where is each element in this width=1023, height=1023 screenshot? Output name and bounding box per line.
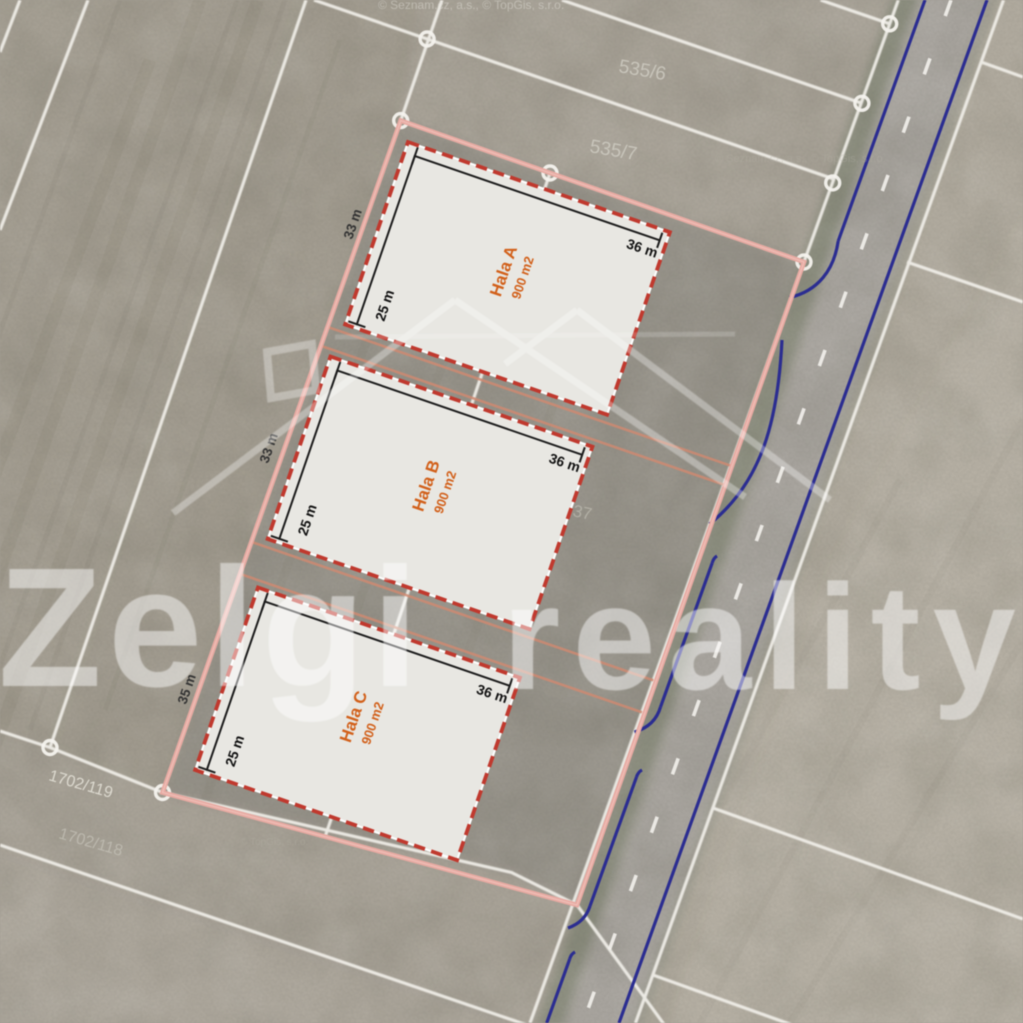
svg-text:© Seznam.cz, a.s., © TopGis, s: © Seznam.cz, a.s., © TopGis, s.r.o.	[378, 0, 564, 12]
svg-text:reality: reality	[502, 553, 1023, 721]
svg-text:37: 37	[571, 501, 593, 524]
svg-text:© Seznam.cz, a.s., © TopGis, s: © Seznam.cz, a.s., © TopGis, s.r.o.	[715, 153, 886, 165]
svg-text:© TopGis, s.r.o.: © TopGis, s.r.o.	[240, 837, 308, 848]
svg-text:Zelgi: Zelgi	[0, 533, 425, 723]
